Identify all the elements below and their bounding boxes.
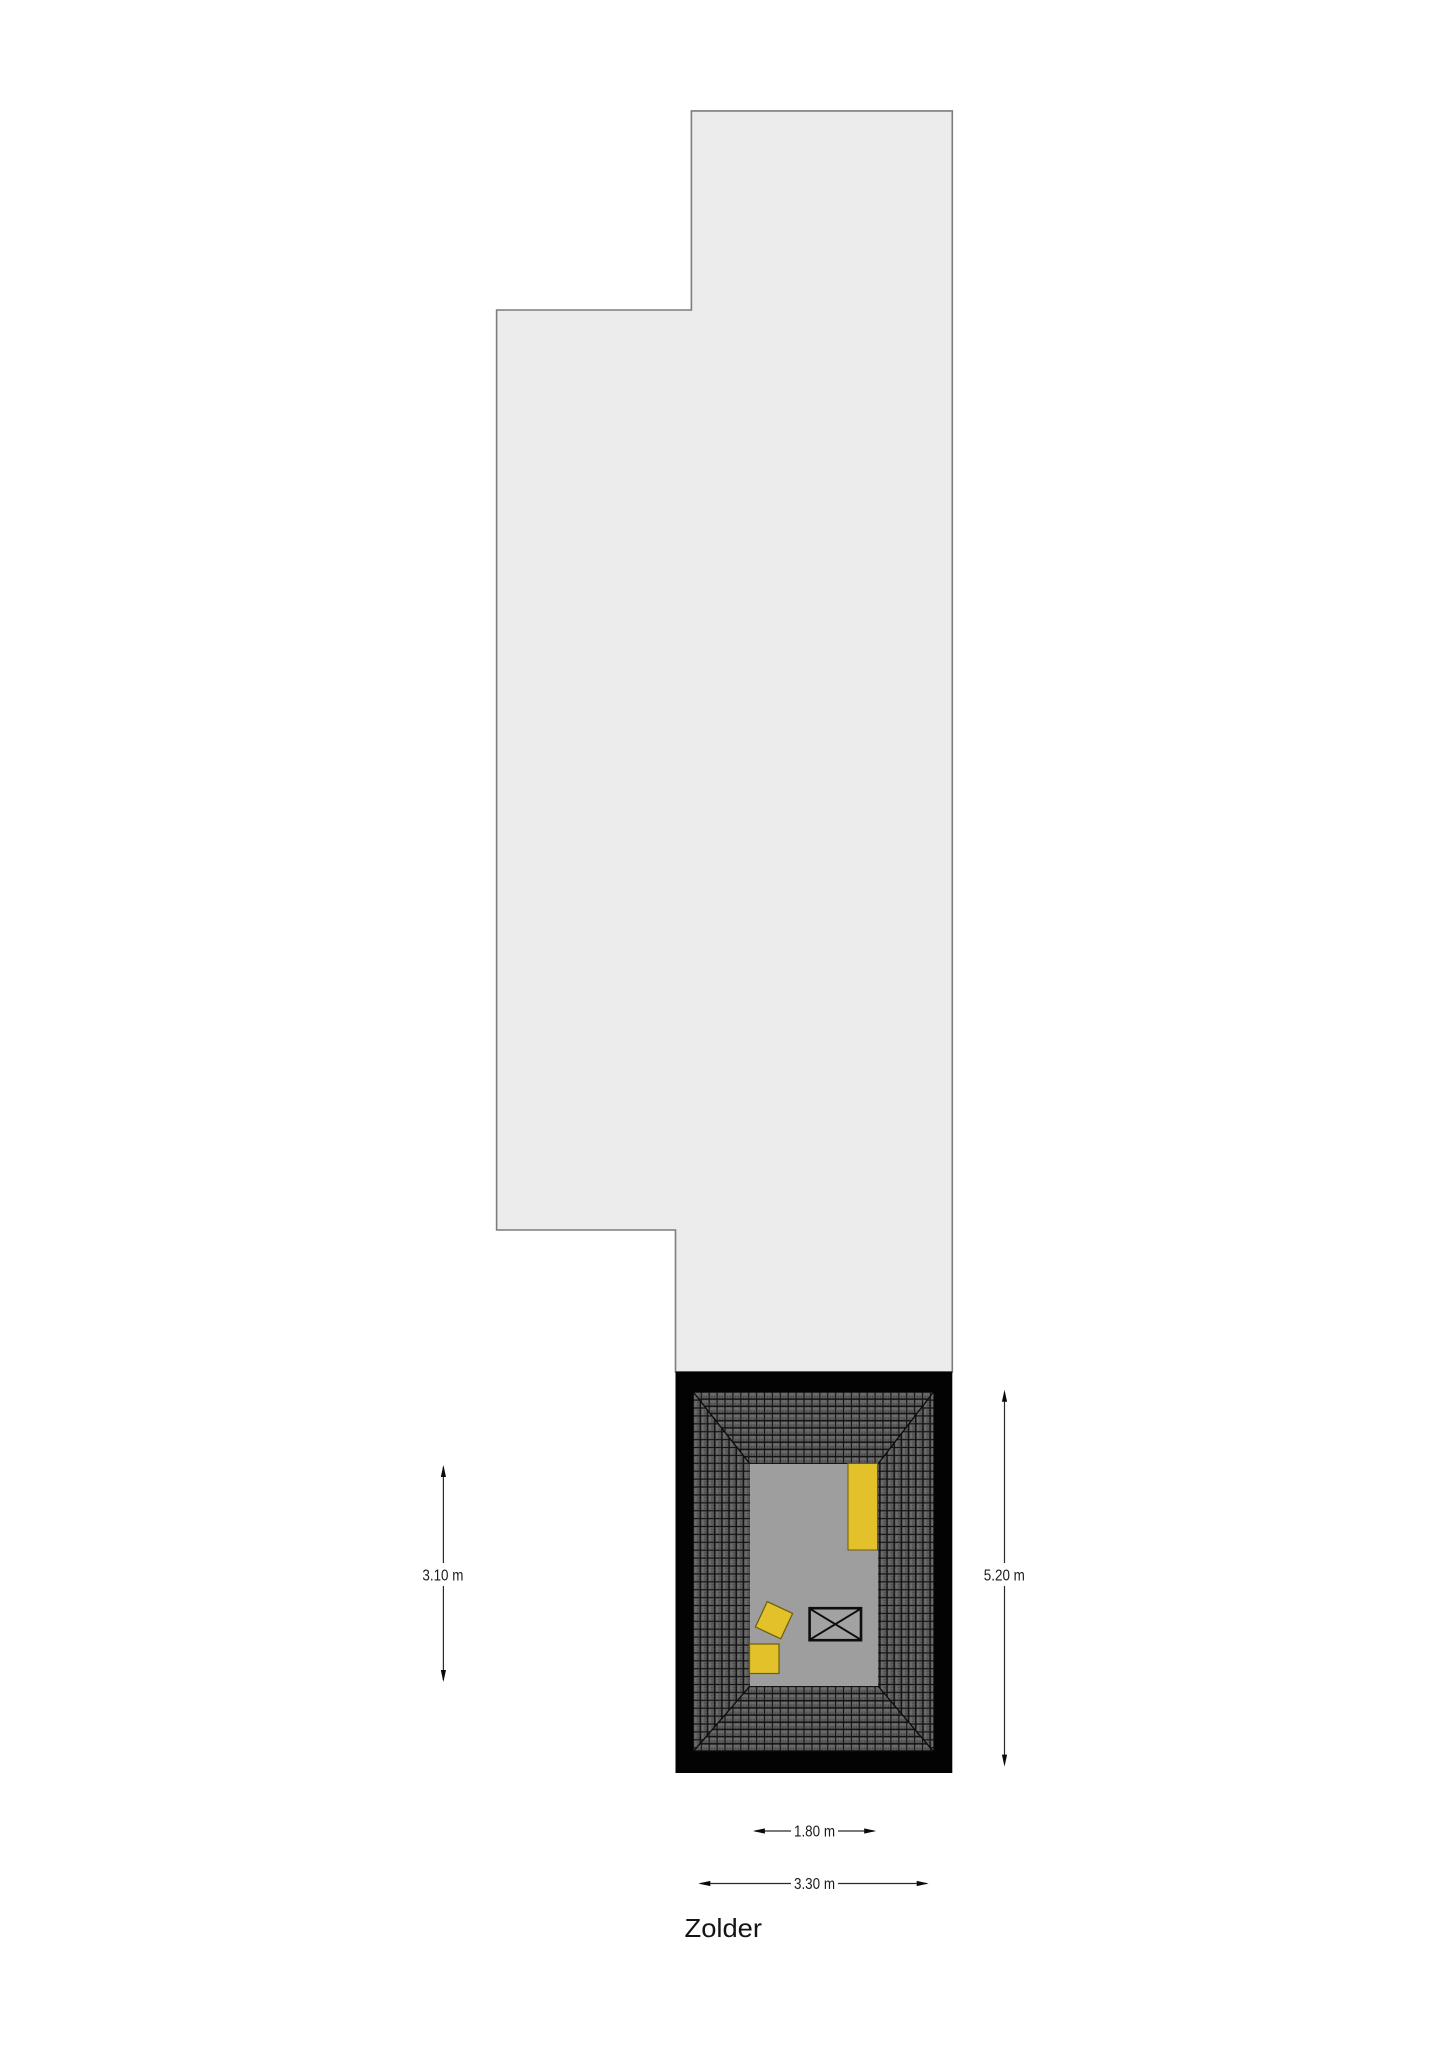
svg-text:3.30 m: 3.30 m	[794, 1876, 835, 1893]
svg-text:5.20 m: 5.20 m	[984, 1568, 1025, 1585]
svg-text:1.80 m: 1.80 m	[794, 1824, 835, 1841]
svg-text:3.10 m: 3.10 m	[422, 1568, 463, 1585]
svg-text:Zolder: Zolder	[685, 1913, 763, 1943]
